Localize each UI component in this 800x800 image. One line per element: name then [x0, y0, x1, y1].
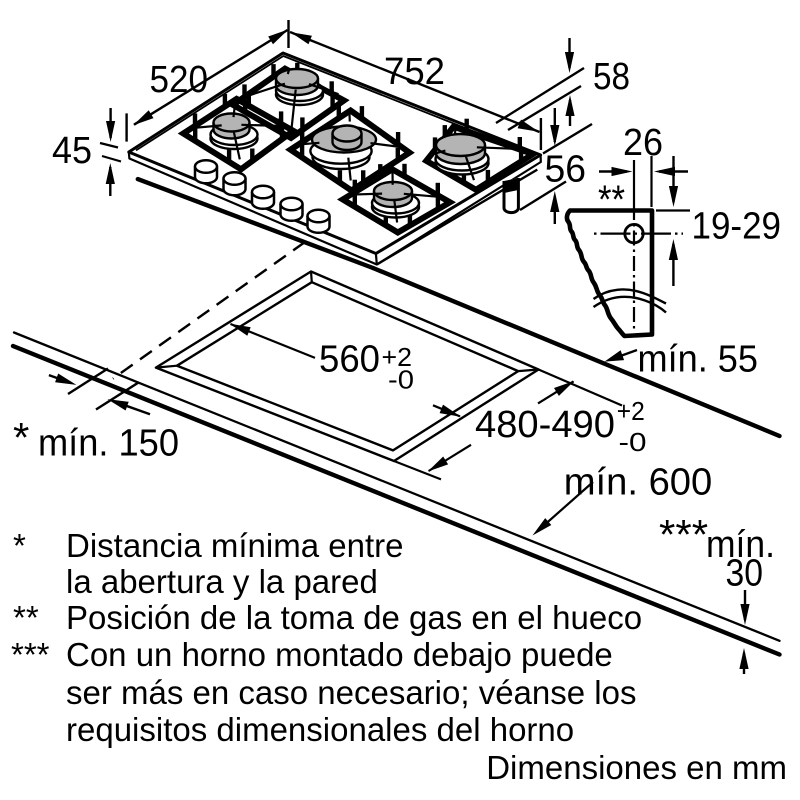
svg-text:Distancia mínima entre: Distancia mínima entre	[66, 527, 403, 564]
svg-text:560: 560	[319, 339, 380, 381]
svg-text:ser más en caso necesario; véa: ser más en caso necesario; véanse los	[66, 674, 636, 711]
svg-text:requisitos dimensionales del h: requisitos dimensionales del horno	[66, 711, 574, 748]
svg-text:26: 26	[623, 122, 663, 164]
svg-text:**: **	[598, 178, 625, 222]
svg-text:56: 56	[545, 149, 587, 191]
svg-text:520: 520	[150, 59, 209, 101]
svg-text:***: ***	[11, 636, 50, 673]
svg-text:Dimensiones en mm: Dimensiones en mm	[486, 749, 787, 786]
svg-text:mín. 150: mín. 150	[38, 423, 179, 465]
svg-text:30: 30	[726, 553, 764, 595]
svg-text:-0: -0	[388, 365, 414, 395]
svg-text:480-490: 480-490	[475, 404, 615, 446]
svg-text:la abertura y la pared: la abertura y la pared	[66, 563, 378, 600]
svg-text:*: *	[13, 527, 26, 564]
svg-text:19-29: 19-29	[692, 206, 782, 248]
svg-text:45: 45	[52, 130, 92, 172]
svg-text:Con un horno montado debajo pu: Con un horno montado debajo puede	[66, 636, 613, 673]
svg-text:mín. 55: mín. 55	[638, 339, 759, 381]
svg-text:+2: +2	[617, 396, 645, 426]
svg-text:***: ***	[659, 511, 708, 558]
svg-text:Posición de la toma de gas en: Posición de la toma de gas en el hueco	[66, 599, 642, 636]
svg-text:**: **	[13, 599, 39, 636]
svg-text:752: 752	[384, 51, 445, 93]
svg-text:-0: -0	[619, 427, 647, 457]
svg-text:*: *	[13, 414, 29, 461]
svg-text:mín. 600: mín. 600	[564, 462, 713, 504]
svg-text:58: 58	[593, 56, 630, 98]
